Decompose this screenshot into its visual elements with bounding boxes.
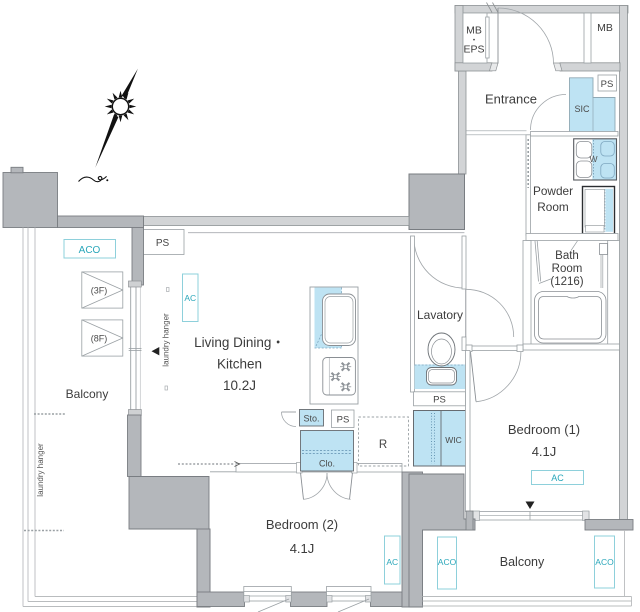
svg-text:AC: AC: [551, 473, 564, 483]
svg-text:Clo.: Clo.: [319, 459, 335, 469]
svg-text:laundry hanger: laundry hanger: [36, 443, 45, 497]
svg-text:PS: PS: [156, 238, 170, 249]
svg-text:Room: Room: [552, 263, 583, 275]
svg-text:ACO: ACO: [438, 557, 457, 567]
svg-text:WIC: WIC: [445, 435, 462, 445]
svg-text:PS: PS: [433, 395, 446, 406]
svg-text:ACO: ACO: [79, 245, 101, 256]
svg-text:AC: AC: [184, 293, 196, 303]
svg-text:W: W: [589, 154, 597, 164]
svg-text:Bedroom (1): Bedroom (1): [508, 422, 580, 437]
svg-text:4.1J: 4.1J: [290, 541, 315, 556]
svg-text:Bedroom (2): Bedroom (2): [266, 517, 338, 532]
svg-text:AC: AC: [386, 557, 398, 567]
svg-text:Living Dining・: Living Dining・: [194, 335, 285, 350]
svg-text:MB: MB: [597, 22, 613, 34]
svg-text:Powder: Powder: [533, 184, 573, 198]
svg-text:(1216): (1216): [550, 276, 583, 288]
svg-text:PS: PS: [601, 79, 614, 90]
svg-text:laundry hanger: laundry hanger: [162, 313, 171, 367]
svg-text:(8F): (8F): [91, 334, 108, 344]
svg-text:Lavatory: Lavatory: [417, 308, 463, 322]
svg-text:Kitchen: Kitchen: [217, 357, 262, 372]
svg-text:4.1J: 4.1J: [532, 444, 557, 459]
svg-text:PS: PS: [337, 415, 350, 426]
svg-text:ACO: ACO: [595, 557, 614, 567]
svg-text:Balcony: Balcony: [66, 387, 109, 401]
svg-text:EPS: EPS: [463, 44, 484, 56]
svg-text:Room: Room: [537, 200, 569, 214]
svg-text:(3F): (3F): [91, 286, 108, 296]
svg-text:10.2J: 10.2J: [223, 378, 256, 393]
svg-text:Bath: Bath: [555, 250, 579, 262]
svg-text:Balcony: Balcony: [500, 555, 545, 569]
svg-text:Sto.: Sto.: [303, 414, 319, 424]
svg-text:SIC: SIC: [574, 104, 590, 114]
svg-text:R: R: [379, 439, 387, 451]
svg-text:Entrance: Entrance: [485, 92, 537, 107]
